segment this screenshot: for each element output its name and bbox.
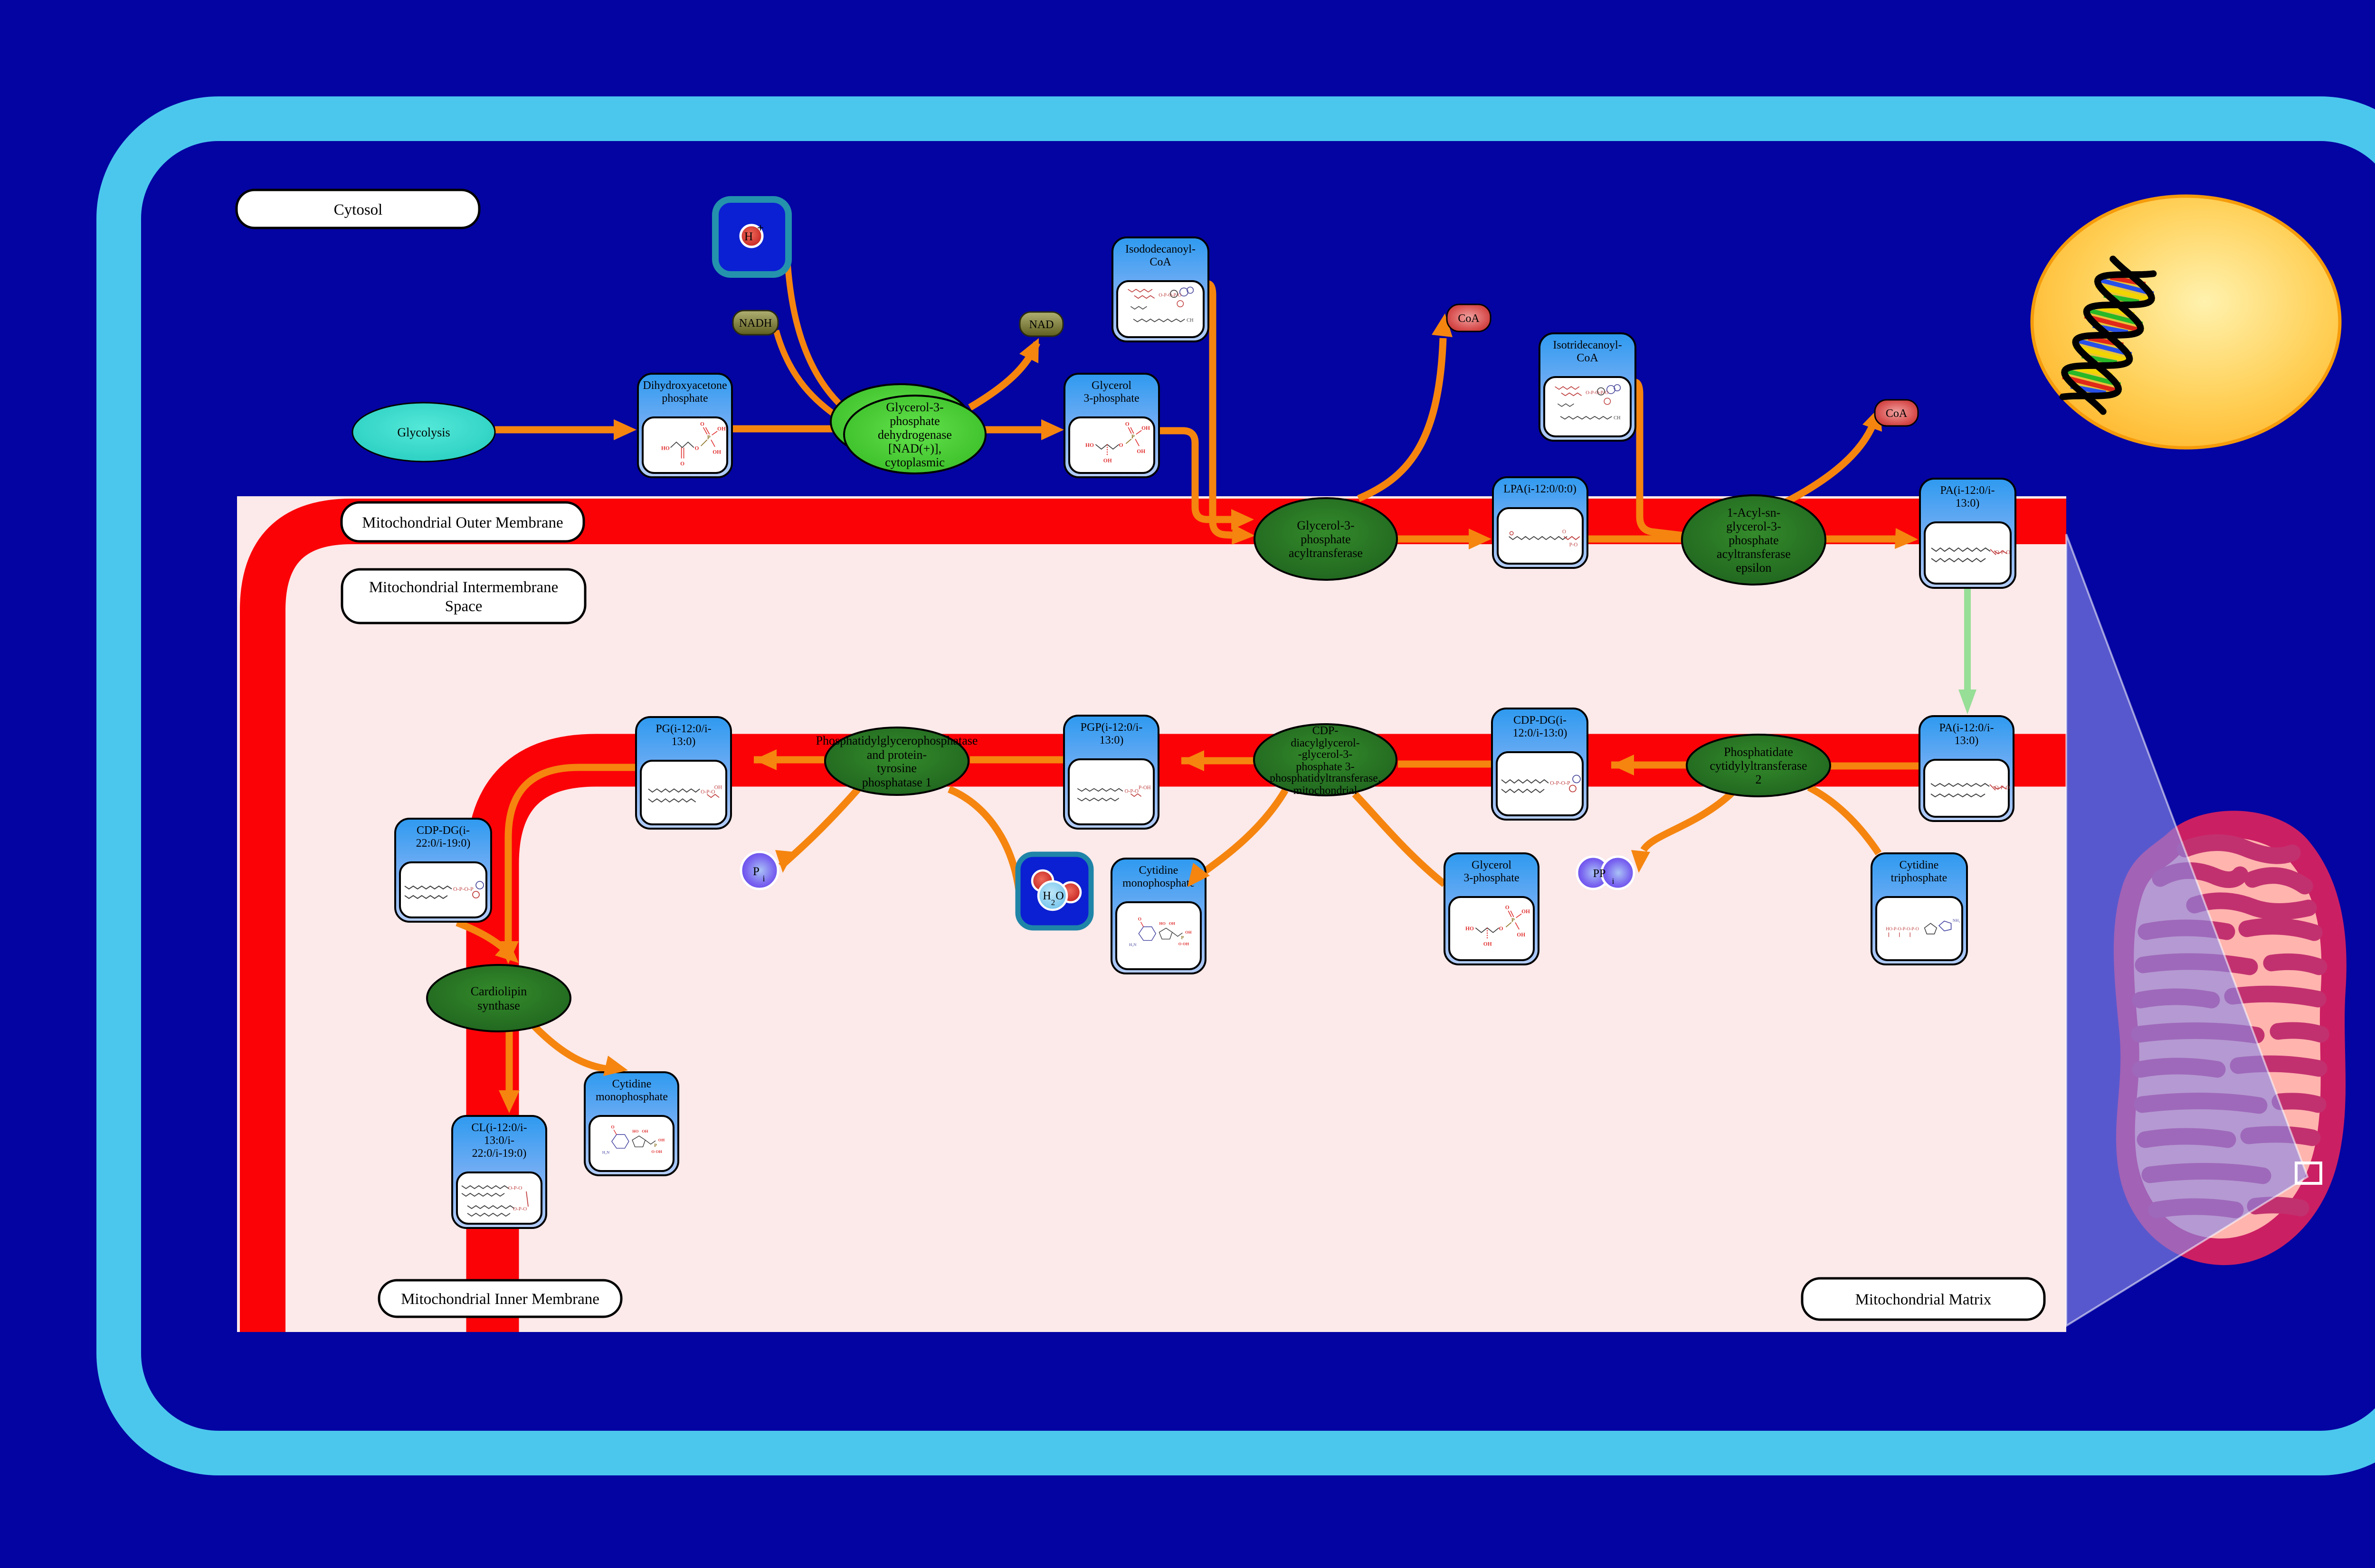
svg-text:O: O <box>680 461 684 467</box>
svg-text:CL(i-12:0/i-: CL(i-12:0/i- <box>471 1122 527 1134</box>
svg-text:-glycerol-3-: -glycerol-3- <box>1298 748 1353 761</box>
svg-text:CDP-: CDP- <box>1312 725 1339 737</box>
svg-text:O-P-O: O-P-O <box>513 1206 527 1212</box>
svg-text:Cytidine: Cytidine <box>1900 859 1939 871</box>
svg-text:O-P-O-P: O-P-O-P <box>453 886 474 892</box>
svg-text:NH₂: NH₂ <box>1953 918 1960 923</box>
svg-text:O-P-O: O-P-O <box>1125 788 1139 794</box>
svg-text:P: P <box>707 435 711 440</box>
svg-text:OH: OH <box>712 450 721 455</box>
svg-text:i: i <box>1612 877 1615 886</box>
svg-text:P-OH: P-OH <box>1139 785 1151 791</box>
svg-text:LPA(i-12:0/0:0): LPA(i-12:0/0:0) <box>1503 483 1577 495</box>
svg-text:Glycerol: Glycerol <box>1472 859 1511 871</box>
svg-text:O-P-O-P: O-P-O-P <box>1550 780 1570 786</box>
svg-text:3-phosphate: 3-phosphate <box>1083 392 1139 405</box>
svg-text:Mitochondrial Inner Membrane: Mitochondrial Inner Membrane <box>401 1291 599 1308</box>
svg-text:monophosphate: monophosphate <box>1122 877 1195 889</box>
svg-text:HO: HO <box>1465 926 1474 932</box>
svg-text:O: O <box>1138 917 1141 922</box>
svg-text:Mitochondrial Matrix: Mitochondrial Matrix <box>1855 1291 1992 1308</box>
svg-text:PP: PP <box>1593 868 1606 880</box>
svg-text:[NAD(+)],: [NAD(+)], <box>888 442 941 455</box>
svg-text:Mitochondrial Outer Membrane: Mitochondrial Outer Membrane <box>362 514 563 531</box>
svg-text:i: i <box>762 874 765 883</box>
svg-text:OH: OH <box>714 784 722 790</box>
svg-text:O: O <box>700 422 704 427</box>
svg-text:phosphatidyltransferase,: phosphatidyltransferase, <box>1270 772 1381 784</box>
svg-text:diacylglycerol-: diacylglycerol- <box>1291 737 1359 749</box>
svg-text:phosphate: phosphate <box>1301 532 1350 546</box>
svg-text:P: P <box>1511 917 1515 923</box>
svg-text:CDP-DG(i-: CDP-DG(i- <box>1513 714 1567 727</box>
svg-text:CH: CH <box>1614 416 1621 421</box>
svg-text:OH: OH <box>658 1138 665 1143</box>
svg-text:Cytidine: Cytidine <box>612 1078 652 1090</box>
svg-text:phosphate: phosphate <box>1729 533 1778 547</box>
svg-text:O-P-O: O-P-O <box>1995 549 2010 556</box>
svg-text:O-P-O: O-P-O <box>508 1185 522 1191</box>
svg-text:H₂N: H₂N <box>1129 942 1137 947</box>
svg-text:O: O <box>1125 422 1130 427</box>
svg-text:O: O <box>1119 443 1123 448</box>
svg-text:22:0/i-19:0): 22:0/i-19:0) <box>472 1147 527 1160</box>
svg-text:O OH: O OH <box>651 1149 662 1154</box>
svg-text:2: 2 <box>1756 773 1762 786</box>
svg-text:2: 2 <box>1051 898 1055 907</box>
svg-text:Isododecanoyl-: Isododecanoyl- <box>1125 243 1196 255</box>
svg-text:OH: OH <box>1521 909 1530 915</box>
svg-text:Cardiolipin: Cardiolipin <box>471 984 527 998</box>
svg-text:Glycerol-3-: Glycerol-3- <box>886 400 943 414</box>
svg-text:O: O <box>1499 926 1503 932</box>
svg-text:PA(i-12:0/i-: PA(i-12:0/i- <box>1940 484 1995 497</box>
svg-text:13:0): 13:0) <box>672 736 696 748</box>
svg-text:Phosphatidate: Phosphatidate <box>1724 745 1793 759</box>
svg-text:PA(i-12:0/i-: PA(i-12:0/i- <box>1939 722 1994 734</box>
svg-text:+: + <box>757 222 764 235</box>
svg-text:OH: OH <box>1517 932 1525 938</box>
svg-text:Dihydroxyacetone: Dihydroxyacetone <box>643 379 727 392</box>
svg-text:13:0): 13:0) <box>1100 734 1124 746</box>
svg-text:phosphate: phosphate <box>890 414 940 428</box>
svg-text:OH: OH <box>1137 449 1145 454</box>
svg-text:13:0): 13:0) <box>1955 735 1979 747</box>
svg-text:CoA: CoA <box>1886 407 1908 420</box>
svg-text:3-phosphate: 3-phosphate <box>1463 872 1519 884</box>
svg-text:Cytosol: Cytosol <box>334 201 383 218</box>
svg-text:triphosphate: triphosphate <box>1891 872 1947 884</box>
svg-text:12:0/i-13:0): 12:0/i-13:0) <box>1513 727 1567 739</box>
svg-text:13:0/i-: 13:0/i- <box>484 1134 514 1147</box>
svg-text:NAD: NAD <box>1029 319 1054 331</box>
svg-text:acyltransferase: acyltransferase <box>1289 546 1363 560</box>
svg-text:acyltransferase: acyltransferase <box>1717 547 1791 561</box>
svg-text:O-P-O-P-O: O-P-O-P-O <box>1586 390 1609 396</box>
svg-text:OH: OH <box>717 426 726 432</box>
svg-text:Glycerol: Glycerol <box>1092 379 1131 392</box>
svg-text:phosphate: phosphate <box>662 392 708 405</box>
svg-text:P: P <box>654 1143 657 1148</box>
svg-text:OH: OH <box>642 1129 648 1133</box>
svg-text:Glycerol-3-: Glycerol-3- <box>1297 519 1354 532</box>
svg-text:Glycolysis: Glycolysis <box>397 425 450 439</box>
svg-text:P-O: P-O <box>1569 542 1578 548</box>
svg-text:O: O <box>1562 529 1566 535</box>
svg-text:CH: CH <box>1187 318 1194 323</box>
svg-text:Cytidine: Cytidine <box>1139 864 1178 877</box>
svg-text:P: P <box>753 865 760 878</box>
svg-text:HO: HO <box>1085 443 1094 448</box>
svg-text:H: H <box>1043 890 1051 902</box>
svg-text:cytoplasmic: cytoplasmic <box>885 455 945 469</box>
svg-text:H: H <box>744 230 753 243</box>
svg-text:dehydrogenase: dehydrogenase <box>878 428 952 442</box>
svg-text:CoA: CoA <box>1149 256 1171 268</box>
svg-text:O OH: O OH <box>1178 942 1189 946</box>
svg-text:O: O <box>1505 905 1510 911</box>
svg-text:22:0/i-19:0): 22:0/i-19:0) <box>416 837 471 850</box>
svg-text:CoA: CoA <box>1577 352 1598 364</box>
svg-text:PGP(i-12:0/i-: PGP(i-12:0/i- <box>1081 721 1143 734</box>
svg-text:O: O <box>1055 890 1064 902</box>
svg-text:O-P-O: O-P-O <box>701 789 715 795</box>
svg-text:Phosphatidylglycerophosphatase: Phosphatidylglycerophosphatase <box>816 734 978 747</box>
svg-text:OH: OH <box>1141 425 1150 431</box>
svg-text:Isotridecanoyl-: Isotridecanoyl- <box>1553 339 1622 351</box>
svg-text:H₂N: H₂N <box>602 1150 610 1155</box>
svg-text:cytidylyltransferase: cytidylyltransferase <box>1710 759 1807 773</box>
svg-text:OH: OH <box>1483 942 1492 947</box>
svg-text:monophosphate: monophosphate <box>596 1091 668 1103</box>
svg-text:phosphatase 1: phosphatase 1 <box>862 775 932 789</box>
svg-text:HO-P-O-P-O-P-O: HO-P-O-P-O-P-O <box>1886 926 1919 932</box>
svg-text:O: O <box>611 1125 614 1130</box>
svg-text:and protein-: and protein- <box>867 748 927 762</box>
svg-text:1-Acyl-sn-: 1-Acyl-sn- <box>1727 506 1781 520</box>
svg-text:phosphate 3-: phosphate 3- <box>1296 761 1354 773</box>
svg-text:NADH: NADH <box>739 317 772 330</box>
svg-text:Mitochondrial Intermembrane: Mitochondrial Intermembrane <box>369 579 559 596</box>
svg-text:CoA: CoA <box>1458 312 1480 325</box>
svg-text:O-P-O: O-P-O <box>1995 784 2010 791</box>
svg-text:HO: HO <box>632 1129 639 1133</box>
svg-text:OH: OH <box>1103 458 1112 464</box>
svg-text:OH: OH <box>1185 930 1192 935</box>
svg-text:tyrosine: tyrosine <box>877 761 917 775</box>
svg-text:P: P <box>1131 434 1135 440</box>
svg-text:PG(i-12:0/i-: PG(i-12:0/i- <box>655 723 711 735</box>
svg-text:CDP-DG(i-: CDP-DG(i- <box>417 824 470 837</box>
svg-text:13:0): 13:0) <box>1956 497 1980 510</box>
svg-text:Space: Space <box>445 598 483 615</box>
svg-text:O: O <box>695 445 699 451</box>
svg-text:OH: OH <box>1169 921 1176 926</box>
svg-text:glycerol-3-: glycerol-3- <box>1726 520 1781 533</box>
svg-text:HO: HO <box>1159 921 1166 926</box>
svg-text:HO: HO <box>661 445 670 451</box>
svg-text:mitochondrial: mitochondrial <box>1293 784 1358 797</box>
svg-text:O-P-O-P-O: O-P-O-P-O <box>1159 293 1182 298</box>
svg-text:epsilon: epsilon <box>1736 561 1771 575</box>
svg-text:P: P <box>1181 936 1184 941</box>
svg-text:synthase: synthase <box>477 999 520 1012</box>
